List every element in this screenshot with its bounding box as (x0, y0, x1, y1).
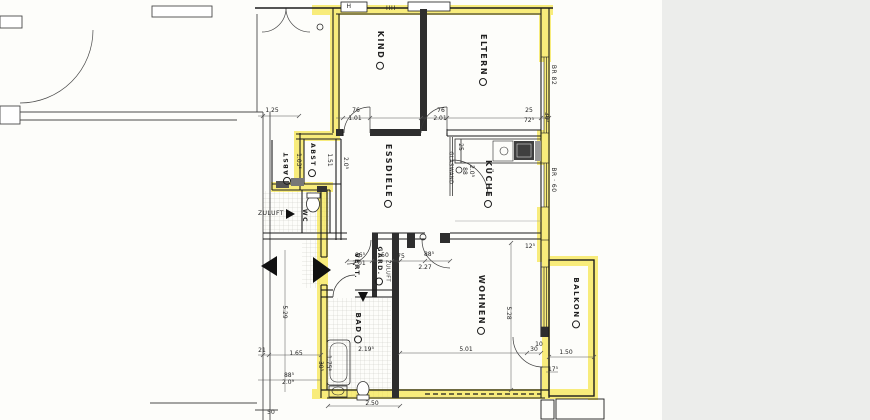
room-number-badge (572, 321, 580, 329)
wall-label-text: BR · 60 (550, 167, 556, 192)
dimension-label-text: 72⁵ (524, 118, 534, 124)
room-label-text: GARD. (376, 247, 382, 276)
dimension-label-text: 86⁵ (355, 253, 365, 259)
room-number-badge (477, 327, 485, 335)
dimension-label-text: 1.51 (326, 153, 332, 166)
dimension-label: 30⁵ (317, 361, 323, 371)
room-label-text: ABST (284, 151, 290, 175)
dimension-label-text: 1.03⁵ (295, 153, 301, 169)
wall-label: GLASWAND (448, 151, 453, 184)
dimension-label: 2.01 (433, 116, 446, 122)
dimension-label-text: 2.19⁵ (358, 347, 374, 353)
floorplan-drawing (0, 0, 870, 420)
dimension-label-text: 2.27 (418, 265, 431, 271)
dimension-label-text: 2.0⁹ (282, 380, 294, 386)
wc-toilet (307, 193, 321, 212)
room-number-badge (479, 78, 487, 86)
dimension-label: 76 (437, 108, 445, 114)
dimension-label: 76 (352, 108, 360, 114)
wall-label: BR · 60 (550, 167, 556, 192)
room-label: KÜCHE (484, 160, 492, 208)
dimension-label-text: 76 (437, 108, 445, 114)
dimension-label-text: 50 (267, 410, 275, 416)
dimension-label-text: 10 (535, 342, 543, 348)
dimension-label-text: 2.01 (433, 116, 446, 122)
dimension-label: 1.51 (326, 153, 332, 166)
dimension-label: 1.25 (265, 108, 278, 114)
dimension-label-text: 5.01 (459, 347, 472, 353)
shaft-block (317, 186, 327, 192)
dimension-label: 1.01 (348, 116, 361, 122)
room-number-badge (283, 177, 291, 185)
dimension-label-text: 25 (457, 143, 463, 151)
dimension-label: 2.0⁵ (342, 157, 348, 169)
shelf-block (291, 178, 304, 186)
dimension-label: 72⁵ (524, 118, 534, 124)
dimension-label: 12⁵ (525, 244, 535, 250)
dimension-label: 17⁵ (548, 367, 558, 373)
dimension-label-text: 1.65 (289, 351, 302, 357)
room-number-badge (384, 200, 392, 208)
wall-label-text: GLASWAND (448, 151, 453, 184)
dimension-label: 2.0⁹ (282, 380, 294, 386)
room-label: ESSDIELE (384, 144, 392, 208)
room-label-text: BALKON (573, 277, 580, 318)
dimension-label-text: 2.01 (352, 261, 365, 267)
room-label: BAD (354, 312, 362, 343)
wall-label-text: ZULUFT (385, 260, 390, 282)
room-number-badge (308, 169, 316, 177)
room-label: WOHNEN (477, 275, 485, 335)
floorplan-page: KINDELTERNESSDIELEKÜCHEWOHNENBALKONBADGA… (0, 0, 870, 420)
dimension-label-text: 2.0⁵ (468, 165, 474, 177)
dimension-label: 2.27 (418, 265, 431, 271)
room-number-badge (376, 61, 384, 69)
dimension-label-text: 12⁵ (525, 244, 535, 250)
dimension-label-text: 5.28 (505, 306, 511, 319)
dimension-label-text: 88 (461, 167, 467, 175)
room-label-text: ELTERN (479, 34, 487, 76)
dimension-label-text: 76 (352, 108, 360, 114)
room-label-text: ABST (309, 143, 315, 167)
dimension-label: 75 (397, 254, 405, 260)
room-number-badge (354, 336, 362, 344)
dimension-label-text: 1.01 (348, 116, 361, 122)
room-number-badge (375, 277, 383, 285)
room-label-text: WOHNEN (477, 275, 485, 325)
dimension-label-text: 21 (258, 348, 266, 354)
dimension-label-text: 75 (397, 254, 405, 260)
dimension-label: 36⁵ (543, 112, 549, 122)
room-label-text: BAD (355, 312, 362, 333)
dimension-label: 5.29 (281, 305, 287, 318)
room-label-text: KIND (376, 31, 384, 60)
dimension-label-text: 36⁵ (543, 112, 549, 122)
dimension-label-text: 5.29 (281, 305, 287, 318)
dimension-label: 5.28 (505, 306, 511, 319)
dimension-label-text: 1.50 (559, 350, 572, 356)
dimension-label: 1.65 (289, 351, 302, 357)
dimension-label: 21 (258, 348, 266, 354)
dimension-label: 25 (525, 108, 533, 114)
dimension-label-text: 88⁵ (424, 252, 434, 258)
wall-label: HH (386, 6, 396, 12)
room-label: ABST (283, 151, 291, 185)
wall-label-text: BR 82 (550, 65, 556, 85)
dimension-label: 1.75⁵ (325, 355, 331, 371)
dimension-label: 2.50 (365, 401, 378, 407)
room-label: WC (301, 209, 307, 223)
wall-label: H (346, 4, 351, 10)
dimension-label-text: 1.75⁵ (325, 355, 331, 371)
dimension-label-text: 1.25 (265, 108, 278, 114)
dimension-label: 2.0⁵ (468, 165, 474, 177)
wall-label-text: ZULUFT (258, 211, 284, 217)
wall-label: BR 82 (550, 65, 556, 85)
room-label-text: WC (301, 209, 307, 223)
dimension-label: 25 (457, 143, 463, 151)
wall-label: ZULUFT (385, 260, 390, 282)
dimension-label: 2.19⁵ (358, 347, 374, 353)
room-label: KIND (376, 31, 384, 70)
dimension-label: 1.03⁵ (295, 153, 301, 169)
dimension-label-text: 30⁵ (317, 361, 323, 371)
room-label: BALKON (572, 277, 580, 328)
room-label-text: KÜCHE (484, 160, 492, 198)
dimension-label: 10 (535, 342, 543, 348)
room-number-badge (484, 200, 492, 208)
dimension-label: 88 (461, 167, 467, 175)
room-label: ELTERN (479, 34, 487, 86)
dimension-label: 86⁵ (355, 253, 365, 259)
dimension-label: 88⁵ (424, 252, 434, 258)
dimension-label-text: 2.0⁵ (342, 157, 348, 169)
bath-toilet (357, 382, 369, 401)
dimension-label-text: 50 (381, 253, 389, 259)
dimension-label: 1.50 (559, 350, 572, 356)
dimension-label: 50 (267, 410, 275, 416)
wall-label-text: HH (386, 6, 396, 12)
dimension-label: 2.01 (352, 261, 365, 267)
room-label: ABST (308, 143, 316, 177)
dimension-label-text: 2.50 (365, 401, 378, 407)
dimension-label-text: 17⁵ (548, 367, 558, 373)
wall-label: ZULUFT (258, 211, 284, 217)
dimension-label: 50 (381, 253, 389, 259)
dimension-label-text: 25 (525, 108, 533, 114)
room-label-text: ESSDIELE (384, 144, 392, 198)
dimension-label: 5.01 (459, 347, 472, 353)
wall-label-text: H (346, 4, 351, 10)
